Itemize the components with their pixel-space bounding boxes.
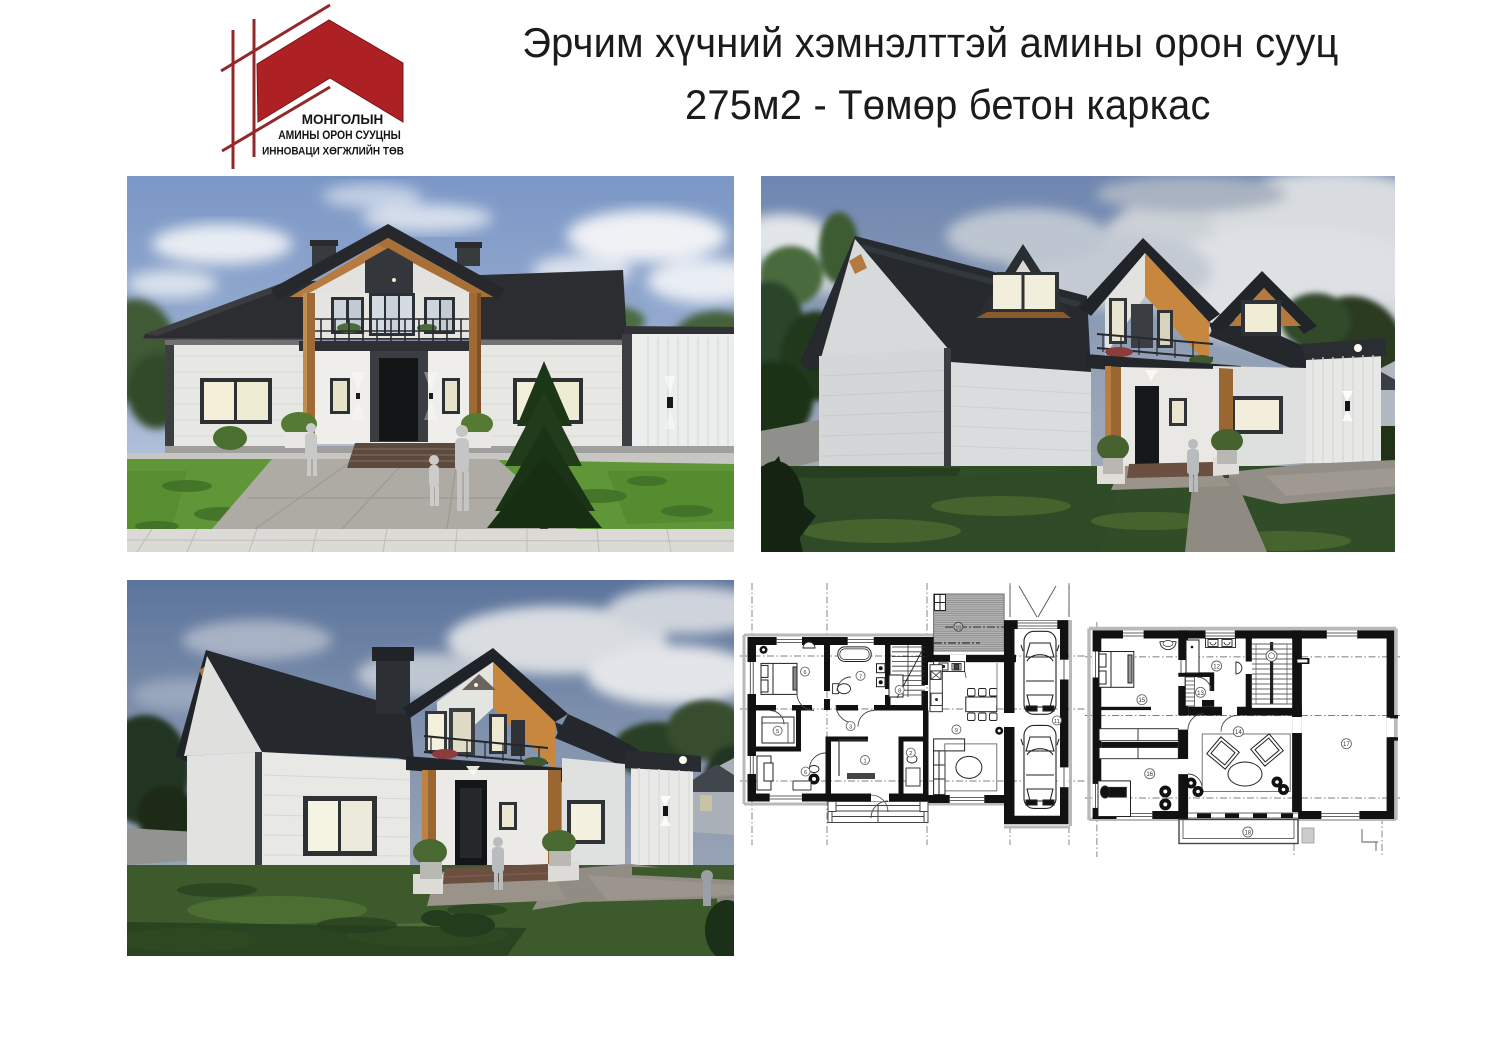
svg-text:5: 5 (776, 729, 779, 735)
svg-text:17: 17 (1343, 742, 1350, 748)
svg-text:16: 16 (1146, 772, 1153, 778)
svg-text:1: 1 (863, 759, 866, 765)
svg-text:12: 12 (1213, 665, 1220, 671)
svg-text:3: 3 (849, 725, 852, 731)
svg-text:11: 11 (1054, 719, 1060, 725)
svg-text:15: 15 (1139, 698, 1146, 704)
svg-text:10: 10 (955, 625, 961, 631)
svg-text:6: 6 (804, 770, 807, 776)
svg-text:8: 8 (898, 688, 901, 694)
svg-text:7: 7 (859, 674, 862, 680)
svg-text:13: 13 (1197, 691, 1204, 697)
svg-text:14: 14 (1235, 730, 1242, 736)
svg-text:АМИНЫ ОРОН СУУЦНЫ: АМИНЫ ОРОН СУУЦНЫ (278, 130, 401, 143)
svg-text:9: 9 (955, 728, 958, 734)
svg-text:6: 6 (803, 670, 806, 676)
svg-text:ИННОВАЦИ ХӨГЖЛИЙН ТӨВ: ИННОВАЦИ ХӨГЖЛИЙН ТӨВ (262, 144, 404, 158)
svg-text:2: 2 (909, 751, 912, 757)
svg-text:МОНГОЛЫН: МОНГОЛЫН (302, 112, 384, 127)
svg-text:18: 18 (1244, 831, 1251, 837)
